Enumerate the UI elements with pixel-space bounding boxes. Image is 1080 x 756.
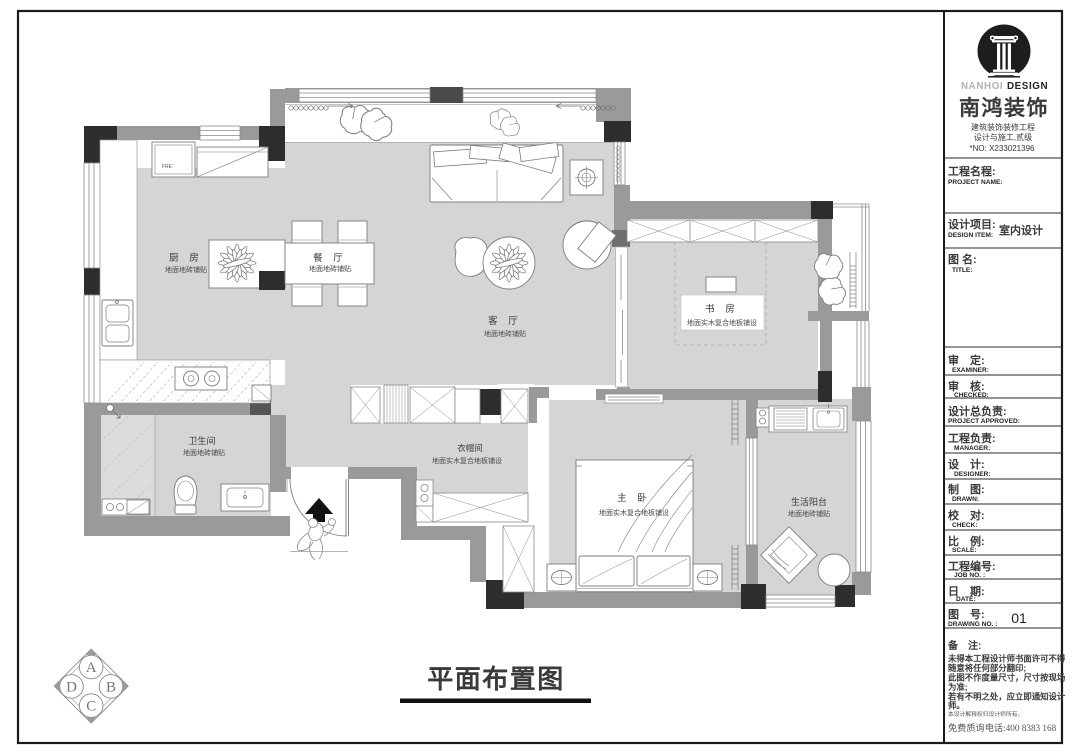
svg-text:DESIGNER:: DESIGNER: — [954, 471, 991, 478]
svg-text:设计与施工,贰级: 设计与施工,贰级 — [974, 132, 1032, 142]
svg-text:地面地砖铺贴: 地面地砖铺贴 — [484, 329, 526, 338]
svg-text:卫生间: 卫生间 — [188, 435, 215, 446]
svg-text:A: A — [86, 660, 97, 676]
svg-text:若有不明之处，应立即通知设计: 若有不明之处，应立即通知设计 — [947, 692, 1066, 702]
svg-text:制 图:: 制 图: — [948, 482, 985, 496]
svg-text:工程名程:: 工程名程: — [948, 164, 996, 178]
svg-text:免费质询电话:400 8383 168: 免费质询电话:400 8383 168 — [948, 722, 1057, 733]
svg-text:师。: 师。 — [948, 701, 965, 711]
svg-text:地面地砖铺贴: 地面地砖铺贴 — [183, 448, 225, 457]
svg-text:地面实木复合地板铺设: 地面实木复合地板铺设 — [687, 318, 757, 327]
svg-text:SCALE:: SCALE: — [952, 547, 977, 554]
svg-text:DATE:: DATE: — [956, 596, 976, 603]
svg-text:工程编号:: 工程编号: — [948, 559, 996, 573]
svg-text:设 计:: 设 计: — [948, 457, 985, 471]
svg-text:C: C — [86, 699, 96, 715]
svg-text:室内设计: 室内设计 — [999, 223, 1043, 237]
svg-text:审 定:: 审 定: — [948, 353, 985, 367]
svg-text:地面实木复合地板铺设: 地面实木复合地板铺设 — [432, 456, 502, 465]
svg-text:为准;: 为准; — [948, 682, 968, 692]
svg-text:未得本工程设计师书面许可不得: 未得本工程设计师书面许可不得 — [947, 654, 1066, 664]
svg-text:D: D — [66, 679, 77, 695]
svg-text:审 核:: 审 核: — [948, 379, 985, 393]
svg-text:图 号:: 图 号: — [948, 608, 985, 621]
svg-text:厨 房: 厨 房 — [169, 252, 203, 264]
svg-text:随意将任何部分翻印;: 随意将任何部分翻印; — [948, 663, 1026, 673]
svg-text:地面地砖铺贴: 地面地砖铺贴 — [165, 265, 207, 274]
svg-text:B: B — [106, 679, 116, 695]
svg-text:JOB NO. :: JOB NO. : — [954, 572, 985, 579]
svg-text:地面实木复合地板铺设: 地面实木复合地板铺设 — [599, 508, 669, 517]
svg-text:01: 01 — [1011, 610, 1027, 626]
svg-text:PROJECT APPROVED:: PROJECT APPROVED: — [948, 418, 1020, 425]
svg-text:DRAWN:: DRAWN: — [952, 496, 979, 503]
svg-text:本设计解释权归设计师所有。: 本设计解释权归设计师所有。 — [948, 710, 1023, 718]
svg-text:NANHOI: NANHOI — [961, 81, 1003, 92]
svg-text:生活阳台: 生活阳台 — [791, 496, 827, 507]
svg-text:设计总负责:: 设计总负责: — [948, 404, 1007, 418]
svg-text:比 例:: 比 例: — [948, 534, 985, 548]
svg-text:CHECKED:: CHECKED: — [954, 392, 989, 399]
svg-text:CHECK:: CHECK: — [952, 522, 978, 529]
svg-text:图 名:: 图 名: — [948, 252, 977, 266]
svg-text:备 注:: 备 注: — [947, 639, 981, 652]
svg-text:衣帽间: 衣帽间 — [457, 443, 483, 453]
svg-text:校 对:: 校 对: — [948, 508, 985, 522]
svg-text:平面布置图: 平面布置图 — [427, 664, 565, 694]
svg-text:PROJECT NAME:: PROJECT NAME: — [948, 179, 1003, 186]
svg-text:地面地砖铺贴: 地面地砖铺贴 — [788, 509, 830, 518]
svg-text:此图不作度量尺寸，尺寸按现场: 此图不作度量尺寸，尺寸按现场 — [948, 673, 1066, 683]
svg-text:地面地砖铺贴: 地面地砖铺贴 — [309, 264, 351, 273]
svg-text:书 房: 书 房 — [705, 303, 739, 315]
svg-text:EXAMINER:: EXAMINER: — [952, 367, 989, 374]
svg-text:TITLE:: TITLE: — [952, 267, 973, 274]
svg-text:客 厅: 客 厅 — [488, 315, 522, 327]
svg-text:DESIGN ITEM:: DESIGN ITEM: — [948, 232, 993, 239]
svg-text:FRE': FRE' — [162, 164, 173, 170]
svg-text:设计项目:: 设计项目: — [948, 217, 996, 231]
svg-text:DRAWING NO. :: DRAWING NO. : — [948, 621, 997, 628]
svg-text:餐 厅: 餐 厅 — [313, 252, 347, 264]
svg-text:南鸿装饰: 南鸿装饰 — [959, 96, 1049, 120]
svg-text:DESIGN: DESIGN — [1007, 81, 1048, 92]
svg-text:建筑装饰装修工程: 建筑装饰装修工程 — [971, 122, 1035, 132]
svg-text:主 卧: 主 卧 — [617, 492, 651, 504]
svg-text:*NO: X233021396: *NO: X233021396 — [970, 144, 1035, 153]
svg-text:工程负责:: 工程负责: — [948, 431, 996, 445]
svg-text:MANAGER:: MANAGER: — [954, 445, 990, 452]
